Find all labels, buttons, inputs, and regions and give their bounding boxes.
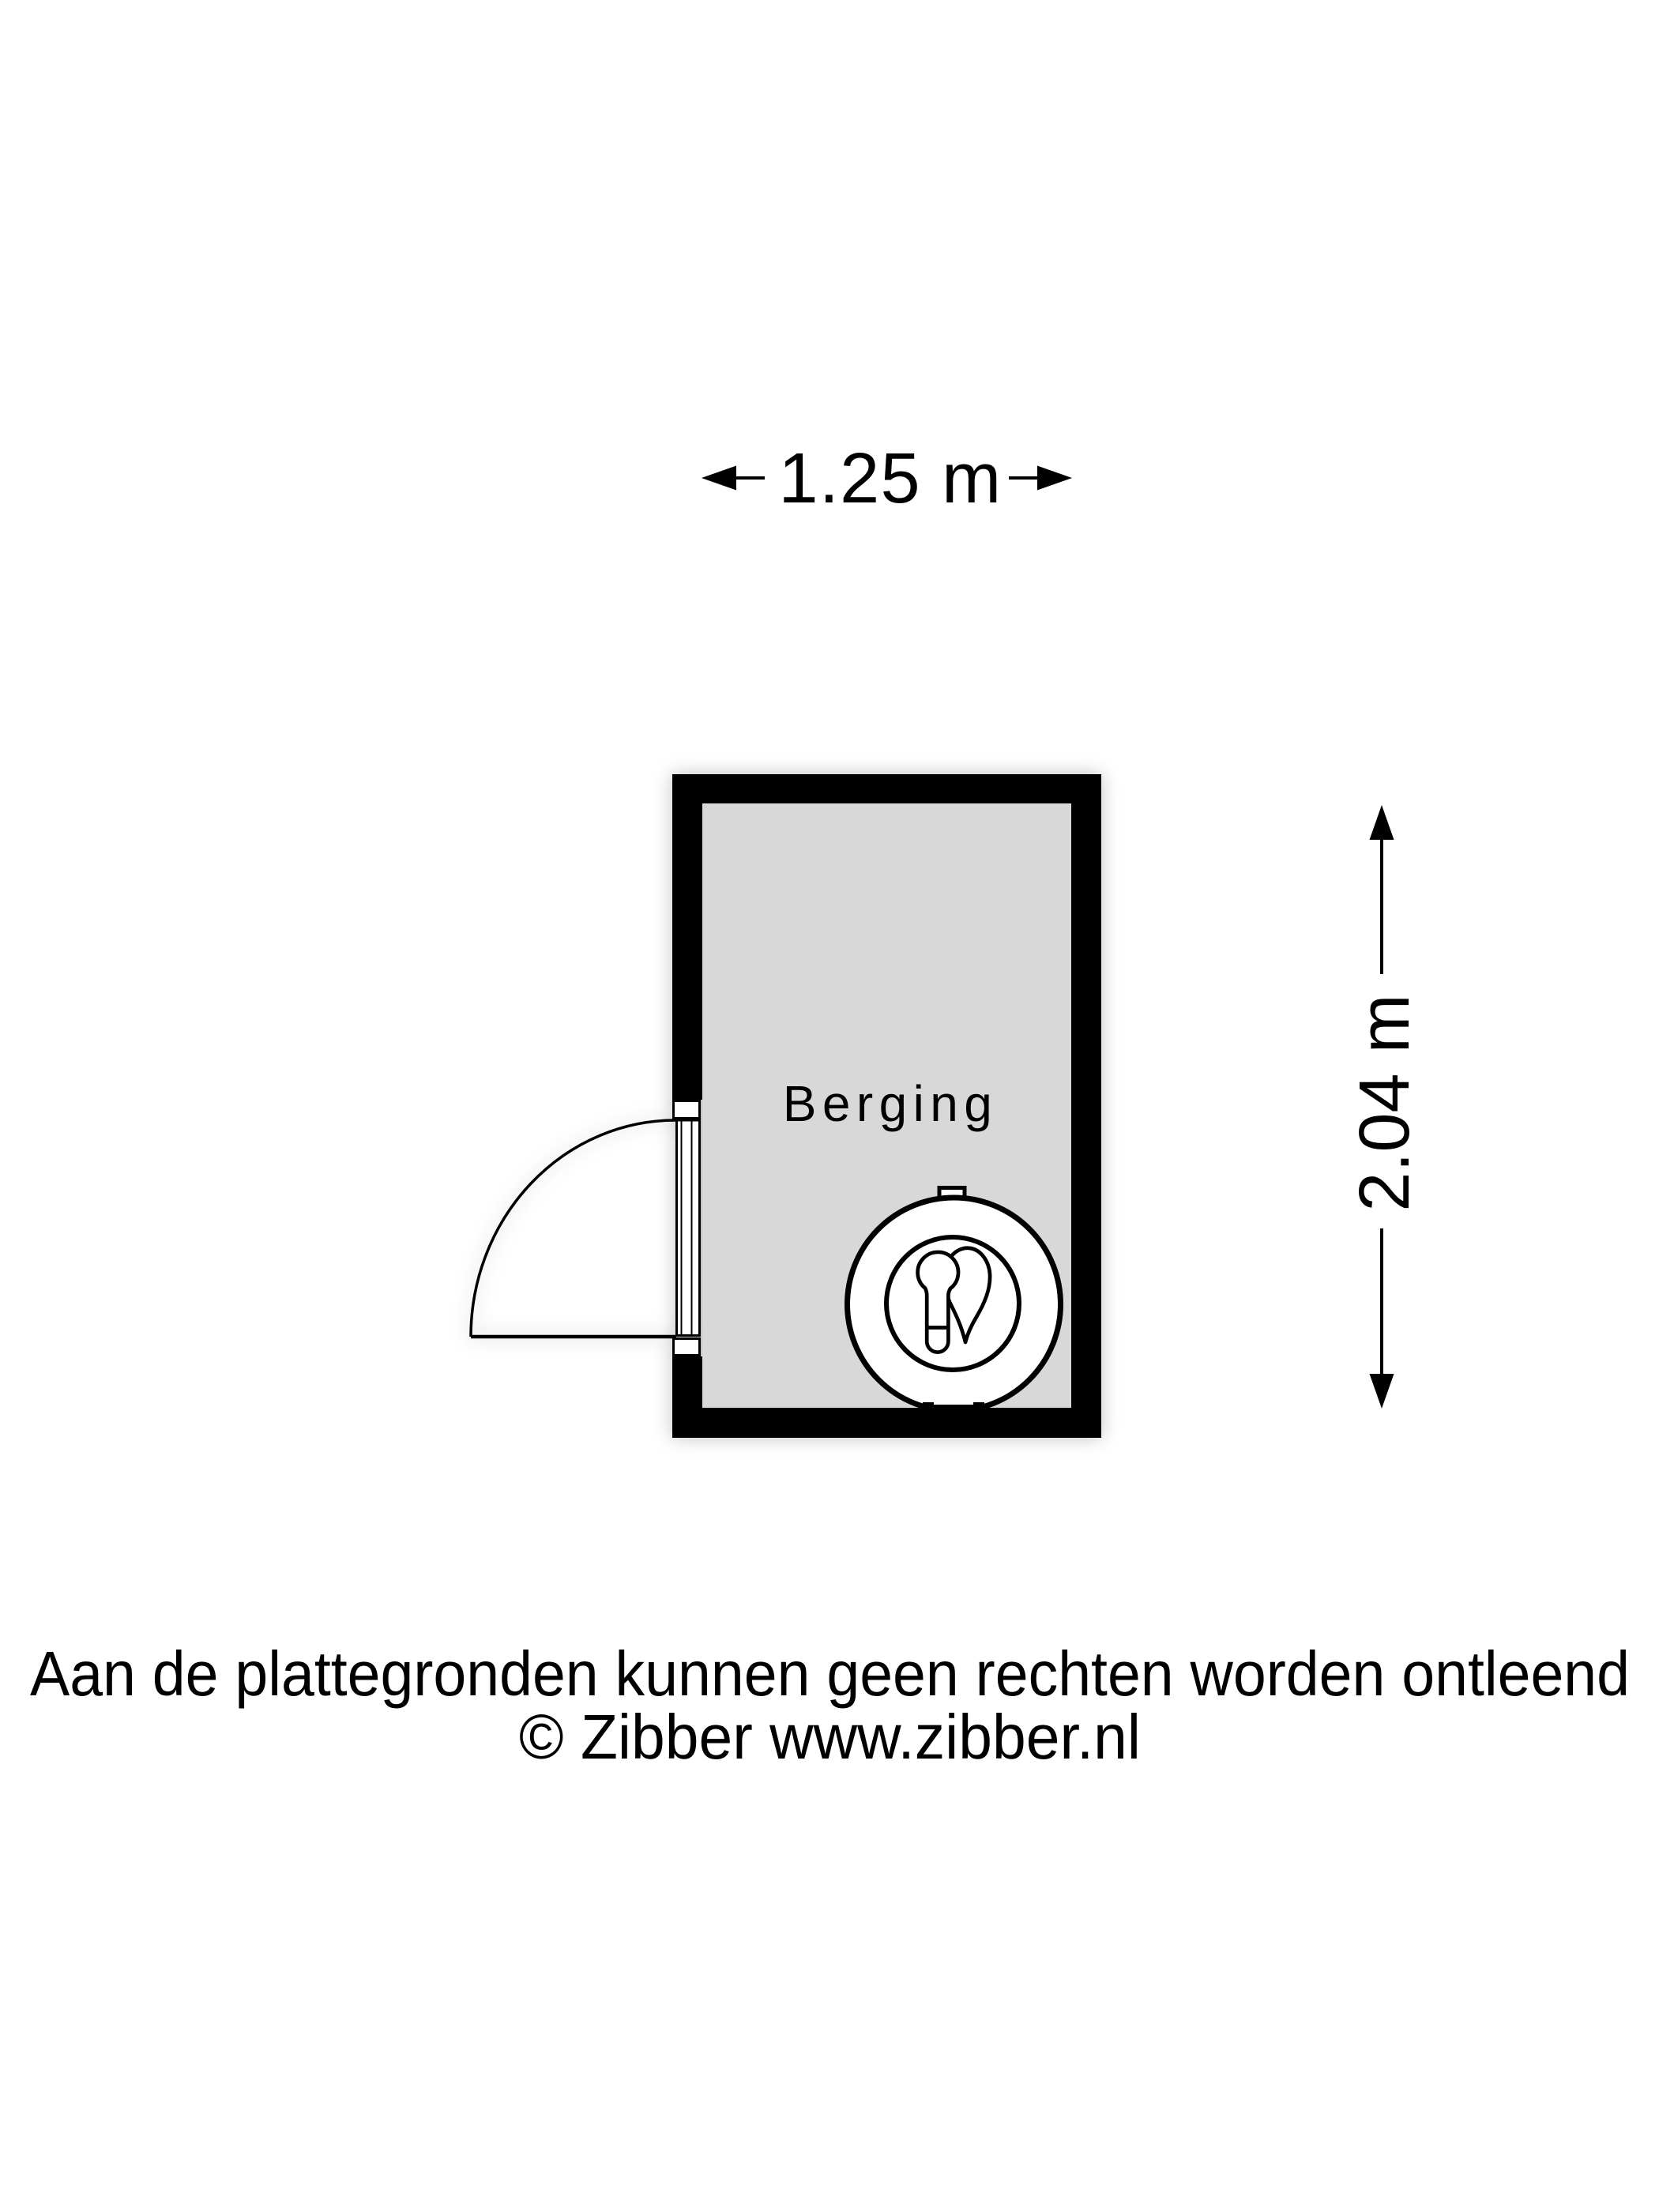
- svg-text:Berging: Berging: [783, 1075, 998, 1132]
- svg-text:2.04 m: 2.04 m: [1345, 994, 1424, 1211]
- svg-text:Aan de plattegronden kunnen ge: Aan de plattegronden kunnen geen rechten…: [30, 1638, 1630, 1709]
- svg-text:1.25 m: 1.25 m: [779, 439, 1003, 518]
- svg-text:© Zibber www.zibber.nl: © Zibber www.zibber.nl: [519, 1702, 1141, 1772]
